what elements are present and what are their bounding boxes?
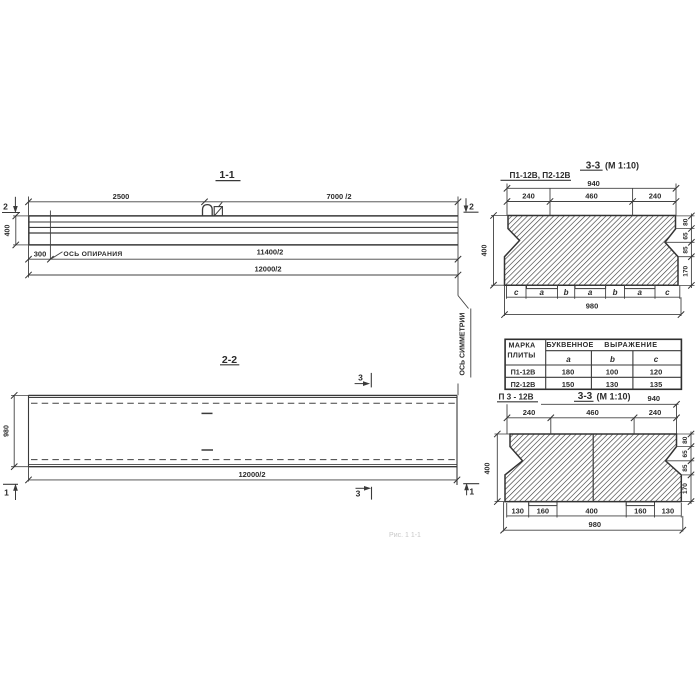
svg-text:П1-12В, П2-12В: П1-12В, П2-12В <box>510 171 571 180</box>
svg-text:b: b <box>564 288 569 297</box>
svg-text:130: 130 <box>511 507 524 516</box>
svg-text:170: 170 <box>682 483 689 494</box>
svg-text:b: b <box>613 288 618 297</box>
svg-text:c: c <box>665 288 670 297</box>
svg-text:ОСЬ ОПИРАНИЯ: ОСЬ ОПИРАНИЯ <box>63 251 122 258</box>
svg-text:a: a <box>566 355 571 364</box>
svg-text:3: 3 <box>356 489 361 499</box>
svg-text:65: 65 <box>682 450 689 458</box>
svg-text:12000/2: 12000/2 <box>254 264 281 273</box>
svg-text:БУКВЕННОЕ: БУКВЕННОЕ <box>546 340 593 349</box>
svg-text:1: 1 <box>469 487 474 497</box>
svg-text:85: 85 <box>682 464 689 472</box>
svg-text:80: 80 <box>683 218 690 226</box>
svg-text:400: 400 <box>5 225 12 237</box>
svg-text:2500: 2500 <box>113 192 130 201</box>
svg-text:85: 85 <box>683 246 690 254</box>
svg-text:1-1: 1-1 <box>219 169 234 181</box>
svg-text:300: 300 <box>34 250 47 259</box>
svg-text:c: c <box>514 288 519 297</box>
svg-text:400: 400 <box>482 245 489 257</box>
svg-text:ОСЬ СИММЕТРИИ: ОСЬ СИММЕТРИИ <box>460 313 467 376</box>
svg-text:a: a <box>588 288 593 297</box>
svg-text:c: c <box>654 355 659 364</box>
svg-text:МАРКА: МАРКА <box>508 340 535 349</box>
svg-text:1: 1 <box>4 488 9 498</box>
svg-text:3: 3 <box>358 373 363 383</box>
svg-text:П1-12В: П1-12В <box>511 367 536 376</box>
svg-text:2: 2 <box>469 202 474 212</box>
svg-text:11400/2: 11400/2 <box>257 248 284 257</box>
svg-text:980: 980 <box>586 301 599 310</box>
svg-text:П2-12В: П2-12В <box>511 380 536 389</box>
svg-text:150: 150 <box>562 380 575 389</box>
svg-text:(М 1:10): (М 1:10) <box>596 391 630 401</box>
svg-text:a: a <box>638 288 643 297</box>
svg-text:ПЛИТЫ: ПЛИТЫ <box>507 351 535 360</box>
svg-text:400: 400 <box>485 463 492 475</box>
svg-text:240: 240 <box>649 408 662 417</box>
svg-text:12000/2: 12000/2 <box>238 470 265 479</box>
svg-text:3-3: 3-3 <box>578 391 593 402</box>
svg-text:2-2: 2-2 <box>222 354 237 366</box>
svg-text:160: 160 <box>537 507 550 516</box>
svg-text:980: 980 <box>4 425 11 437</box>
svg-text:180: 180 <box>562 368 575 377</box>
svg-text:980: 980 <box>589 520 602 529</box>
svg-text:160: 160 <box>634 507 647 516</box>
svg-text:240: 240 <box>649 192 662 201</box>
svg-text:940: 940 <box>648 394 661 403</box>
svg-text:240: 240 <box>522 192 535 201</box>
svg-text:(М 1:10): (М 1:10) <box>605 161 639 171</box>
svg-text:170: 170 <box>683 265 690 276</box>
svg-text:7000 /2: 7000 /2 <box>326 192 351 201</box>
svg-text:Рис. 1 1-1: Рис. 1 1-1 <box>389 532 421 539</box>
svg-text:100: 100 <box>606 368 619 377</box>
svg-text:b: b <box>610 355 615 364</box>
svg-text:2: 2 <box>3 202 8 212</box>
svg-text:a: a <box>540 288 545 297</box>
svg-text:460: 460 <box>585 192 598 201</box>
svg-text:460: 460 <box>586 408 599 417</box>
svg-text:130: 130 <box>662 507 675 516</box>
svg-text:135: 135 <box>650 380 663 389</box>
svg-text:120: 120 <box>650 368 663 377</box>
svg-text:80: 80 <box>682 436 689 444</box>
svg-text:400: 400 <box>585 507 598 516</box>
svg-text:240: 240 <box>523 408 536 417</box>
svg-text:ВЫРАЖЕНИЕ: ВЫРАЖЕНИЕ <box>604 340 657 349</box>
svg-text:940: 940 <box>587 179 600 188</box>
svg-text:130: 130 <box>606 380 619 389</box>
svg-text:П 3 - 12В: П 3 - 12В <box>498 393 533 402</box>
svg-text:65: 65 <box>683 232 690 240</box>
